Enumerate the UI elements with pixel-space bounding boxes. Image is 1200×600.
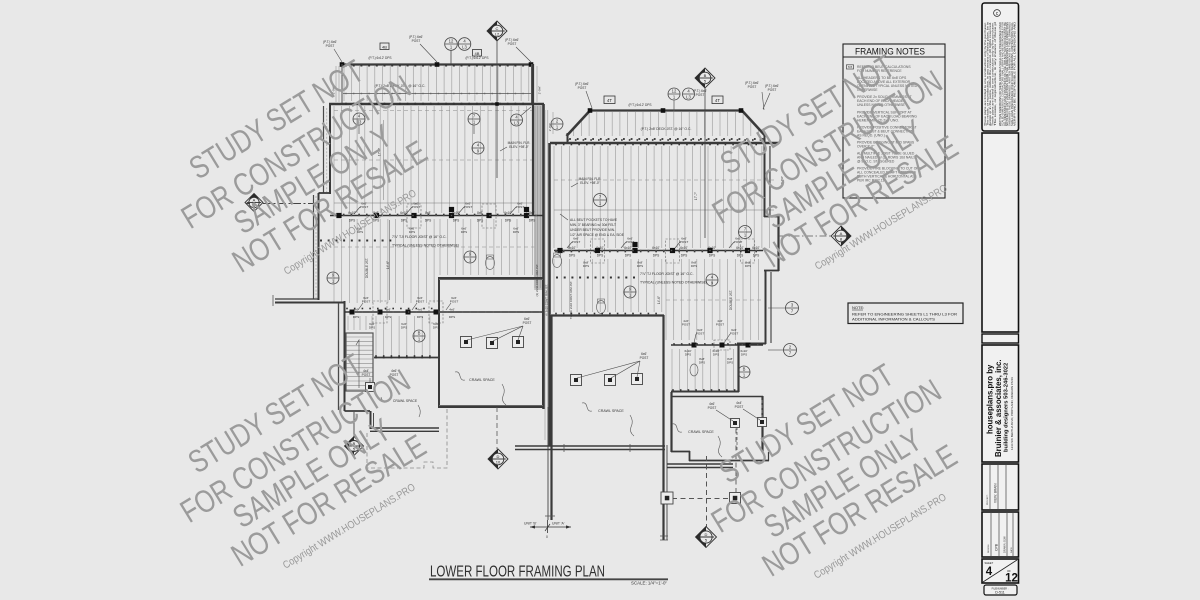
- svg-text:POST: POST: [626, 240, 635, 244]
- svg-text:DPS: DPS: [369, 326, 375, 330]
- svg-text:6x10': 6x10': [652, 246, 660, 250]
- svg-text:4x6': 4x6': [353, 308, 359, 312]
- svg-text:10: 10: [496, 459, 501, 464]
- svg-text:6x10': 6x10': [596, 246, 604, 250]
- svg-text:DPS: DPS: [453, 219, 460, 223]
- svg-text:DPS: DPS: [433, 326, 439, 330]
- svg-text:POST: POST: [412, 205, 421, 209]
- svg-text:DPS: DPS: [425, 219, 432, 223]
- svg-text:DPS: DPS: [529, 219, 536, 223]
- svg-text:POST: POST: [768, 88, 777, 92]
- svg-text:POST: POST: [708, 406, 717, 410]
- svg-text:6x10': 6x10': [400, 211, 408, 215]
- svg-text:(2) 2x10 CONT. RIM JST.: (2) 2x10 CONT. RIM JST.: [535, 264, 539, 297]
- svg-text:DESIGN:: DESIGN:: [988, 544, 990, 553]
- svg-text:DPS: DPS: [409, 230, 415, 234]
- svg-text:POST: POST: [716, 323, 724, 327]
- svg-text:DPS: DPS: [653, 254, 660, 258]
- svg-text:DPS: DPS: [741, 353, 747, 357]
- svg-text:DOUBLE JST.: DOUBLE JST.: [729, 290, 733, 310]
- svg-text:PROJECT:: PROJECT:: [987, 494, 989, 505]
- svg-text:Bruinier & associates, inc.: Bruinier & associates, inc.: [994, 360, 1003, 458]
- svg-text:DPS: DPS: [583, 264, 589, 268]
- svg-text:POST: POST: [572, 240, 581, 244]
- svg-text:ADDITIONAL INFORMATION & CALLO: ADDITIONAL INFORMATION & CALLOUTS: [852, 317, 935, 322]
- svg-text:8x8': 8x8': [477, 211, 483, 215]
- svg-text:POST: POST: [326, 44, 335, 48]
- svg-text:THK'D/ 2x10 CONT. RIM JST.: THK'D/ 2x10 CONT. RIM JST.: [569, 281, 573, 319]
- svg-text:SCALE: 1/4"=1'-0": SCALE: 1/4"=1'-0": [631, 581, 668, 586]
- svg-text:7⅞" TJ FLOOR JOIST @ 16" O.C.: 7⅞" TJ FLOOR JOIST @ 16" O.C.: [640, 272, 694, 276]
- svg-text:UNIT 'B': UNIT 'B': [524, 522, 537, 526]
- svg-text:DPS: DPS: [385, 315, 391, 319]
- svg-text:NOTE:: NOTE:: [852, 305, 864, 310]
- svg-text:DPS: DPS: [401, 219, 408, 223]
- svg-text:C: C: [496, 26, 499, 31]
- svg-text:6x10': 6x10': [568, 246, 576, 250]
- svg-text:DPS: DPS: [681, 254, 688, 258]
- svg-text:DRAWN: DJW: DRAWN: DJW: [1003, 536, 1007, 553]
- svg-text:DOUBLE JST.: DOUBLE JST.: [365, 258, 369, 278]
- svg-text:12: 12: [449, 39, 454, 44]
- svg-text:A/ 2x10 CONT. RIM JST.: A/ 2x10 CONT. RIM JST.: [545, 284, 549, 316]
- svg-text:SHEET: SHEET: [985, 561, 994, 565]
- svg-text:building designers 503-246-302: building designers 503-246-3022: [1004, 363, 1010, 452]
- svg-text:6x10': 6x10': [736, 246, 744, 250]
- svg-text:POST: POST: [523, 321, 532, 325]
- svg-text:DPS: DPS: [401, 326, 407, 330]
- svg-text:(P.T.) 6x12' DPS: (P.T.) 6x12' DPS: [368, 56, 391, 60]
- svg-text:DATE:: DATE:: [1010, 546, 1013, 553]
- svg-text:6x10': 6x10': [680, 246, 688, 250]
- svg-text:(P.T.) 2x8′ DECK JST. @ 16" O.: (P.T.) 2x8′ DECK JST. @ 16" O.C.: [641, 127, 692, 131]
- svg-text:B: B: [704, 73, 707, 78]
- svg-text:2'-0⅝": 2'-0⅝": [538, 86, 542, 94]
- svg-text:6x10': 6x10': [708, 246, 716, 250]
- svg-text:17'-7": 17'-7": [694, 192, 698, 200]
- svg-text:DPS: DPS: [727, 361, 733, 365]
- svg-text:ELEV. +98'-0": ELEV. +98'-0": [509, 145, 529, 149]
- svg-text:8x8': 8x8': [529, 211, 535, 215]
- svg-text:0: 0: [546, 535, 548, 539]
- svg-text:D: D: [705, 532, 708, 537]
- svg-text:4B: 4B: [382, 44, 387, 49]
- svg-text:B: B: [418, 331, 421, 336]
- svg-text:DPS: DPS: [477, 219, 484, 223]
- svg-text:6x10': 6x10': [504, 211, 512, 215]
- svg-text:DPS: DPS: [637, 264, 643, 268]
- svg-text:FRAMING NOTES: FRAMING NOTES: [855, 47, 925, 58]
- svg-text:DPS: DPS: [737, 254, 744, 258]
- svg-text:D: D: [497, 454, 500, 459]
- svg-text:POST: POST: [730, 332, 739, 336]
- svg-text:2'-0⅝": 2'-0⅝": [548, 123, 552, 131]
- svg-text:12: 12: [1005, 573, 1018, 585]
- svg-text:DPS: DPS: [449, 315, 455, 319]
- svg-text:4: 4: [986, 566, 993, 578]
- svg-text:POST: POST: [412, 39, 421, 43]
- svg-text:UNIT 'A': UNIT 'A': [552, 522, 565, 526]
- svg-text:D-511: D-511: [995, 591, 1005, 595]
- svg-text:POST: POST: [640, 356, 649, 360]
- svg-text:8x8': 8x8': [425, 211, 431, 215]
- svg-text:B: B: [743, 367, 746, 372]
- svg-text:LOWER FLOOR FRAMING PLAN: LOWER FLOOR FRAMING PLAN: [430, 564, 605, 581]
- svg-text:7⅞" TJI FLOOR JOIST @ 16" O.C.: 7⅞" TJI FLOOR JOIST @ 16" O.C.: [392, 235, 447, 239]
- svg-text:DPS: DPS: [685, 353, 691, 357]
- svg-text:POST: POST: [508, 42, 517, 46]
- svg-text:UNDER BEUT PROVIDE MIN.: UNDER BEUT PROVIDE MIN.: [570, 228, 615, 232]
- svg-text:6x10': 6x10': [452, 211, 460, 215]
- svg-text:MIN. 3" BEARING w/ 30# FELT: MIN. 3" BEARING w/ 30# FELT: [570, 223, 616, 227]
- svg-text:14'-6": 14'-6": [657, 296, 661, 304]
- svg-text:POST: POST: [682, 323, 690, 327]
- svg-text:4T: 4T: [607, 98, 612, 103]
- svg-text:(P.T.) 6x12' DPS: (P.T.) 6x12' DPS: [465, 56, 488, 60]
- svg-text:14'-6": 14'-6": [386, 261, 390, 269]
- svg-text:CRAWL SPACE: CRAWL SPACE: [688, 430, 714, 434]
- svg-text:DPS: DPS: [505, 219, 512, 223]
- svg-text:POST: POST: [516, 205, 525, 209]
- svg-text:The resale, or reproduction, i: The resale, or reproduction, in any mean…: [993, 21, 997, 126]
- svg-text:L3: L3: [462, 45, 467, 50]
- svg-text:DPS: DPS: [597, 254, 604, 258]
- svg-text:POST: POST: [696, 93, 705, 97]
- svg-text:4x6': 4x6': [417, 308, 423, 312]
- svg-text:6x10': 6x10': [624, 246, 632, 250]
- svg-text:VERIFY AND BE RESPONSIBLE FOR: VERIFY AND BE RESPONSIBLE FOR ALL DIMENS…: [1013, 22, 1017, 126]
- svg-text:12: 12: [672, 89, 677, 94]
- svg-text:L3: L3: [514, 121, 519, 126]
- svg-text:CRAWL SPACE: CRAWL SPACE: [598, 409, 624, 413]
- svg-text:DPS: DPS: [625, 254, 632, 258]
- svg-text:1/2" AIR SPACE @ END & EA. SID: 1/2" AIR SPACE @ END & EA. SIDE: [570, 233, 625, 237]
- svg-text:POST: POST: [578, 86, 587, 90]
- svg-text:4T: 4T: [715, 98, 720, 103]
- svg-text:DPS: DPS: [417, 315, 423, 319]
- svg-text:CPB: CPB: [995, 543, 999, 551]
- svg-text:VIEW: BRAIN: VIEW: BRAIN: [994, 483, 998, 503]
- svg-text:TYPICAL (UNLESS NOTED OTHERWIS: TYPICAL (UNLESS NOTED OTHERWISE): [640, 280, 707, 284]
- svg-text:ALL BEUT POCKETS TO HAVE: ALL BEUT POCKETS TO HAVE: [570, 218, 618, 222]
- svg-text:(P.T.) 6x12' DPS: (P.T.) 6x12' DPS: [628, 103, 651, 107]
- svg-text:DPS: DPS: [713, 353, 719, 357]
- svg-text:POST: POST: [735, 405, 744, 409]
- svg-text:ELEV. +98'-0": ELEV. +98'-0": [580, 181, 600, 185]
- svg-text:DPS: DPS: [699, 361, 705, 365]
- svg-text:1234 SW BERTHA BLVD, PORTLAND,: 1234 SW BERTHA BLVD, PORTLAND, OREGON 97…: [1010, 377, 1014, 450]
- svg-text:4x6': 4x6': [385, 308, 391, 312]
- svg-text:DPS: DPS: [353, 315, 359, 319]
- svg-text:POST: POST: [464, 205, 473, 209]
- svg-text:DPS: DPS: [709, 254, 716, 258]
- svg-text:DPS: DPS: [745, 264, 751, 268]
- svg-text:DPS: DPS: [691, 264, 697, 268]
- svg-text:DPS: DPS: [513, 230, 519, 234]
- svg-text:DPS: DPS: [753, 254, 760, 258]
- svg-text:POST: POST: [696, 332, 705, 336]
- svg-text:POST: POST: [748, 85, 757, 89]
- svg-text:CRAWL SPACE: CRAWL SPACE: [469, 378, 495, 382]
- svg-text:POST: POST: [680, 240, 689, 244]
- svg-text:4x6': 4x6': [449, 308, 455, 312]
- svg-text:TYPICAL (UNLESS NOTED OTHERWIS: TYPICAL (UNLESS NOTED OTHERWISE): [392, 243, 459, 247]
- svg-text:DPS: DPS: [569, 254, 576, 258]
- svg-text:L2: L2: [495, 31, 500, 36]
- svg-text:L3: L3: [686, 95, 691, 100]
- svg-text:POST: POST: [734, 240, 743, 244]
- svg-text:DPS: DPS: [461, 230, 467, 234]
